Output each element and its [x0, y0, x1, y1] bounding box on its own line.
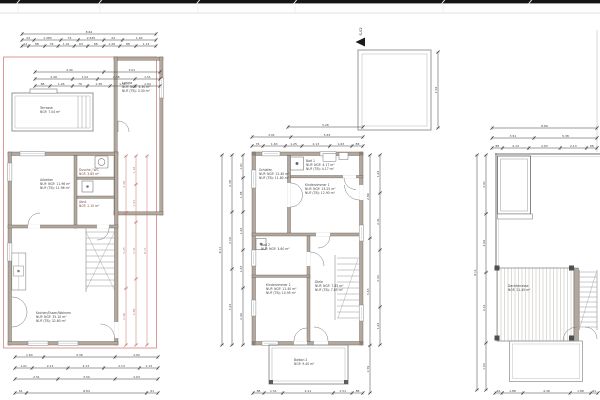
- dim-label: 88: [356, 142, 360, 146]
- room-area-bad2: NUF: NGF: 3.60 m²: [261, 247, 290, 251]
- dim-label: 1.01: [63, 42, 70, 46]
- dim-label: 8.64: [86, 30, 93, 34]
- dim-label: 1.01: [239, 163, 243, 170]
- dim-label: 1.93: [136, 36, 143, 40]
- balcony-outline: Balkon 2 NGF: 9.40 m²: [269, 345, 348, 384]
- room-area-schlafen-2: NUF (TB): 11.80 m²: [259, 176, 290, 180]
- dim-label: 5.26: [322, 123, 329, 127]
- dim-label: 1.385: [43, 36, 52, 40]
- section-marker: S-02: [356, 27, 366, 46]
- dim-label: 8.11: [473, 269, 477, 276]
- room-area-wohnen-2: NUF (TB): 32.60 m²: [36, 319, 67, 323]
- right-plan: Dachterrasse NGF: 21.40 m²: [495, 30, 600, 382]
- dim-label: 2.13: [312, 142, 319, 146]
- dim-label: 61: [150, 389, 154, 393]
- room-area-abstell: NGF: 2.10 m²: [79, 204, 100, 208]
- dim-label: 88: [35, 42, 39, 46]
- dim-chain: 8.11: [473, 153, 479, 391]
- room-area-wc: NGF: 3.85 m²: [79, 172, 100, 176]
- dim-label: 14: [23, 42, 27, 46]
- dim-label: 2.13: [82, 364, 89, 368]
- dim-label: 61: [497, 389, 501, 393]
- dim-label: 24: [111, 36, 115, 40]
- dim-label: 1.51: [339, 389, 346, 393]
- dim-label: 2.89: [132, 308, 136, 315]
- dim-chain: 2.56: [434, 50, 440, 129]
- dim-label: 2.635: [87, 36, 96, 40]
- room-area-terrasse: NGF: 7.04 m²: [40, 110, 61, 114]
- dim-label: 2.01: [482, 181, 486, 188]
- dim-label: 88: [257, 389, 261, 393]
- dim-label: 8.11: [143, 247, 147, 254]
- dim-label: 1.51: [270, 389, 277, 393]
- dim-label: 4.44: [66, 68, 73, 72]
- dim-label: 4.38: [76, 353, 83, 357]
- kitchen-counter: [12, 253, 26, 290]
- dim-label: 61: [592, 389, 596, 393]
- dim-label: 2.38: [228, 180, 232, 187]
- loggia-annex: Loggia NUF: NGF: 3.30 m² NUF (TB): 3.30 …: [114, 57, 164, 215]
- dim-label: 2.13: [47, 364, 54, 368]
- dim-label: 24: [26, 36, 30, 40]
- dim-chain: 881.514.111.5188: [251, 389, 364, 395]
- dim-chain: 8.11: [218, 153, 224, 346]
- dim-label: 2.44: [376, 275, 380, 282]
- dim-chain: 8.89: [490, 124, 598, 130]
- dim-label: 74: [68, 36, 72, 40]
- dim-label: 1.25: [290, 142, 297, 146]
- dim-chain: 1.181.632.412.89: [132, 154, 138, 346]
- section-marker-label: S-02: [359, 27, 363, 35]
- dim-label: 1.51: [144, 75, 151, 79]
- dim-label: 2.38: [113, 75, 120, 79]
- dim-chain: 5.26: [286, 123, 364, 129]
- dim-label: 8.11: [218, 247, 222, 254]
- section-marker-arrow-icon: [356, 38, 366, 47]
- room-area-kind2-2: NUF (TB): 10.95 m²: [266, 291, 297, 295]
- right-stair: [580, 270, 598, 330]
- dim-label: 5.38: [562, 134, 569, 138]
- right-plan-interior-rect: [498, 156, 533, 219]
- dim-label: 2.56: [434, 87, 438, 94]
- dim-label: 2.06: [482, 240, 486, 247]
- dim-chain: 8.11: [143, 154, 149, 346]
- dim-label: 2.63: [133, 375, 140, 379]
- dim-chain: 882.132.632.1388: [490, 144, 598, 150]
- dim-label: 3.51: [510, 134, 517, 138]
- dim-label: 3.63: [366, 288, 370, 295]
- dim-label: 4.11: [305, 389, 312, 393]
- dim-label: 1.26: [58, 82, 65, 86]
- room-area-arbeiten-2: NUF (TB): 11.96 m²: [40, 186, 71, 190]
- dim-chain: 1.012.132.132.131.13: [13, 364, 159, 370]
- dim-label: 63: [79, 42, 83, 46]
- left-stair: [86, 229, 115, 293]
- dim-label: 2.26: [50, 75, 57, 79]
- dim-chain: 1488761.0163881.26881.13: [20, 42, 157, 48]
- dim-label: 88: [495, 144, 499, 148]
- dim-chain: 618.6461: [13, 389, 159, 395]
- dim-label: 1.26: [108, 42, 115, 46]
- dim-label: 88: [41, 82, 45, 86]
- right-plan-wall: [574, 268, 579, 341]
- dim-label: 2.13: [570, 144, 577, 148]
- dim-label: 88: [94, 42, 98, 46]
- roof-terrace-deck: Dachterrasse NGF: 21.40 m²: [495, 266, 575, 342]
- dim-label: 8.64: [83, 389, 90, 393]
- dim-label: 3.25: [122, 247, 126, 254]
- dim-chain: 2.012.062.411.63: [482, 153, 488, 391]
- dim-label: 1.63: [239, 266, 243, 273]
- dim-label: 2.89: [366, 193, 370, 200]
- dim-label: 2.63: [541, 144, 548, 148]
- dim-label: 88: [126, 42, 130, 46]
- dim-label: 2.41: [132, 247, 136, 254]
- dim-label: 3.50: [83, 375, 90, 379]
- dim-label: 2.46: [239, 313, 243, 320]
- dim-label: 2.41: [376, 218, 380, 225]
- dim-chain: 3.515.38: [490, 134, 598, 140]
- dim-label: 1.18: [132, 167, 136, 174]
- dim-label: 1.64: [144, 82, 151, 86]
- dim-label: 61: [19, 389, 23, 393]
- drawing-sheet: Terrasse NGF: 7.04 m² Loggia NUF: NGF: 3…: [0, 0, 600, 400]
- dim-label: 1.38: [239, 191, 243, 198]
- dim-label: 2.62: [133, 353, 140, 357]
- dim-label: 1.63: [482, 363, 486, 370]
- dim-chain: 3.015.63: [250, 133, 364, 139]
- dim-label: 76: [78, 82, 82, 86]
- room-area-balkon: NGF: 9.40 m²: [294, 362, 315, 366]
- dim-label: 1.13: [143, 42, 150, 46]
- dim-chain: 2.382.503.23: [228, 153, 234, 346]
- dim-label: 76: [256, 142, 260, 146]
- floorplan-drawing: Terrasse NGF: 7.04 m² Loggia NUF: NGF: 3…: [0, 0, 600, 400]
- dim-chain: 2.383.252.48: [122, 154, 128, 346]
- dim-chain: 1.644.382.62: [13, 353, 159, 359]
- left-plan: Terrasse NGF: 7.04 m² Loggia NUF: NGF: 3…: [4, 57, 164, 348]
- dim-label: 1.01: [20, 364, 27, 368]
- dim-label: 3.01: [129, 68, 136, 72]
- room-area-diele-2: NUF (TB): 7.85 m²: [315, 288, 344, 292]
- dim-label: 2.13: [118, 364, 125, 368]
- roof-outline: [358, 50, 431, 130]
- dim-label: 76: [50, 42, 54, 46]
- dim-chain: 241.385742.635241.93: [20, 36, 157, 42]
- dim-label: 2.48: [122, 313, 126, 320]
- dim-chain: 611.884.361.8861: [493, 389, 599, 395]
- dim-label: 1.63: [132, 200, 136, 207]
- dim-chain: 4.443.01: [33, 68, 161, 74]
- door-arc: [118, 121, 129, 132]
- dim-label: 1.51: [119, 82, 126, 86]
- middle-plan-door-arcs: [291, 178, 360, 342]
- dim-label: 1.63: [239, 228, 243, 235]
- dim-label: 4.36: [543, 389, 550, 393]
- dim-label: 5.63: [324, 133, 331, 137]
- dim-chain: 2.513.502.63: [13, 375, 159, 381]
- dim-label: 2.51: [33, 375, 40, 379]
- right-lower-balcony: [510, 341, 583, 382]
- dim-label: 1.64: [26, 353, 33, 357]
- dim-label: 1.38: [95, 82, 102, 86]
- dim-label: 88: [356, 389, 360, 393]
- dim-label: 88: [590, 144, 594, 148]
- dim-label: 3.23: [228, 304, 232, 311]
- dim-label: 1.63: [271, 142, 278, 146]
- dim-label: 1.63: [337, 142, 344, 146]
- middle-plan: S-02: [252, 27, 431, 384]
- sheet-edge-dimension-band: [0, 0, 600, 13]
- dim-label: 3.01: [268, 133, 275, 137]
- dim-label: 1.88: [577, 389, 584, 393]
- dim-chain: 2.893.631.59: [366, 153, 372, 394]
- dim-label: 2.38: [122, 181, 126, 188]
- dim-label: 2.13: [512, 144, 519, 148]
- dim-label: 1.63: [376, 171, 380, 178]
- dim-chain: 1.632.412.441.63: [376, 153, 382, 346]
- dim-label: 1.13: [145, 364, 152, 368]
- dim-chain: 1.011.381.631.632.46: [239, 153, 245, 346]
- dim-label: 1.63: [376, 323, 380, 330]
- room-area-loggia-2: NUF (TB): 3.30 m²: [122, 89, 151, 93]
- dim-label: 2.41: [482, 304, 486, 311]
- room-area-kind1-2: NUF (TB): 12.90 m²: [305, 191, 336, 195]
- dim-label: 8.89: [541, 124, 548, 128]
- dim-label: 1.59: [366, 366, 370, 373]
- dim-chain: 2.261.012.381.51: [33, 75, 161, 81]
- dim-label: 1.88: [509, 389, 516, 393]
- terrace-outline: Terrasse NGF: 7.04 m²: [12, 89, 93, 131]
- dim-label: 2.50: [228, 237, 232, 244]
- room-area-bad1-2: NUF (TB): 4.17 m²: [306, 167, 335, 171]
- dim-chain: 761.631.252.131.6388: [250, 142, 364, 148]
- dim-label: 1.01: [82, 75, 89, 79]
- room-area-dachterrasse: NGF: 21.40 m²: [508, 288, 531, 292]
